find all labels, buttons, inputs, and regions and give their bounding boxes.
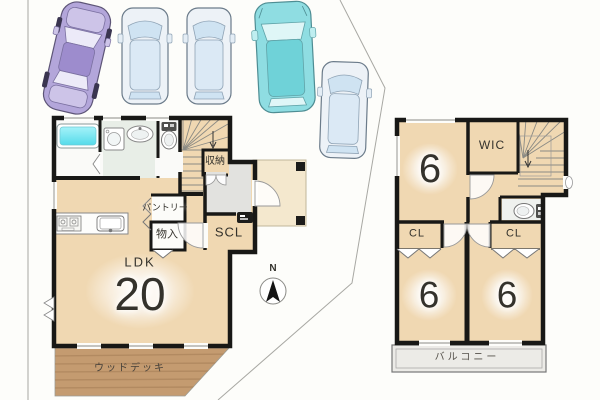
car-teal-suv xyxy=(250,0,320,113)
kitchen-counter xyxy=(54,213,128,234)
floorplan-drawing xyxy=(0,0,600,400)
label-cl-left: CL xyxy=(409,229,425,240)
label-ldk: LDK xyxy=(124,256,155,269)
label-wic: WIC xyxy=(479,139,505,151)
label-pantry: パントリー xyxy=(142,204,187,213)
vanity-sink xyxy=(127,126,153,142)
label-shuno: 収納 xyxy=(205,157,225,167)
label-room6-top: 6 xyxy=(419,149,441,189)
car-purple-sedan xyxy=(36,0,117,118)
label-room6-bl: 6 xyxy=(419,277,440,314)
porch-post xyxy=(296,162,305,171)
car-van-2 xyxy=(183,8,235,104)
north-compass xyxy=(260,278,286,304)
toilet-1f xyxy=(162,122,177,149)
washing-machine xyxy=(104,128,124,150)
porch-post xyxy=(296,216,305,225)
label-ldk-size: 20 xyxy=(114,271,165,317)
window-handle-2f xyxy=(566,177,573,189)
label-wood-deck: ウッドデッキ xyxy=(94,364,166,374)
entrance-door-icon xyxy=(237,212,253,223)
floorplan-canvas: パントリー 物入 SCL 収納 LDK 20 ウッドデッキ N 6 WIC CL… xyxy=(0,0,600,400)
label-room6-br: 6 xyxy=(497,277,518,314)
car-van-3 xyxy=(315,61,372,159)
toilet-2f xyxy=(514,204,544,219)
label-balcony: バルコニー xyxy=(435,353,500,363)
label-north: N xyxy=(269,264,276,274)
bathtub xyxy=(57,124,99,148)
label-monoire: 物入 xyxy=(156,230,178,241)
label-scl: SCL xyxy=(215,226,243,239)
label-cl-right: CL xyxy=(506,229,522,240)
car-van-1 xyxy=(118,8,172,104)
